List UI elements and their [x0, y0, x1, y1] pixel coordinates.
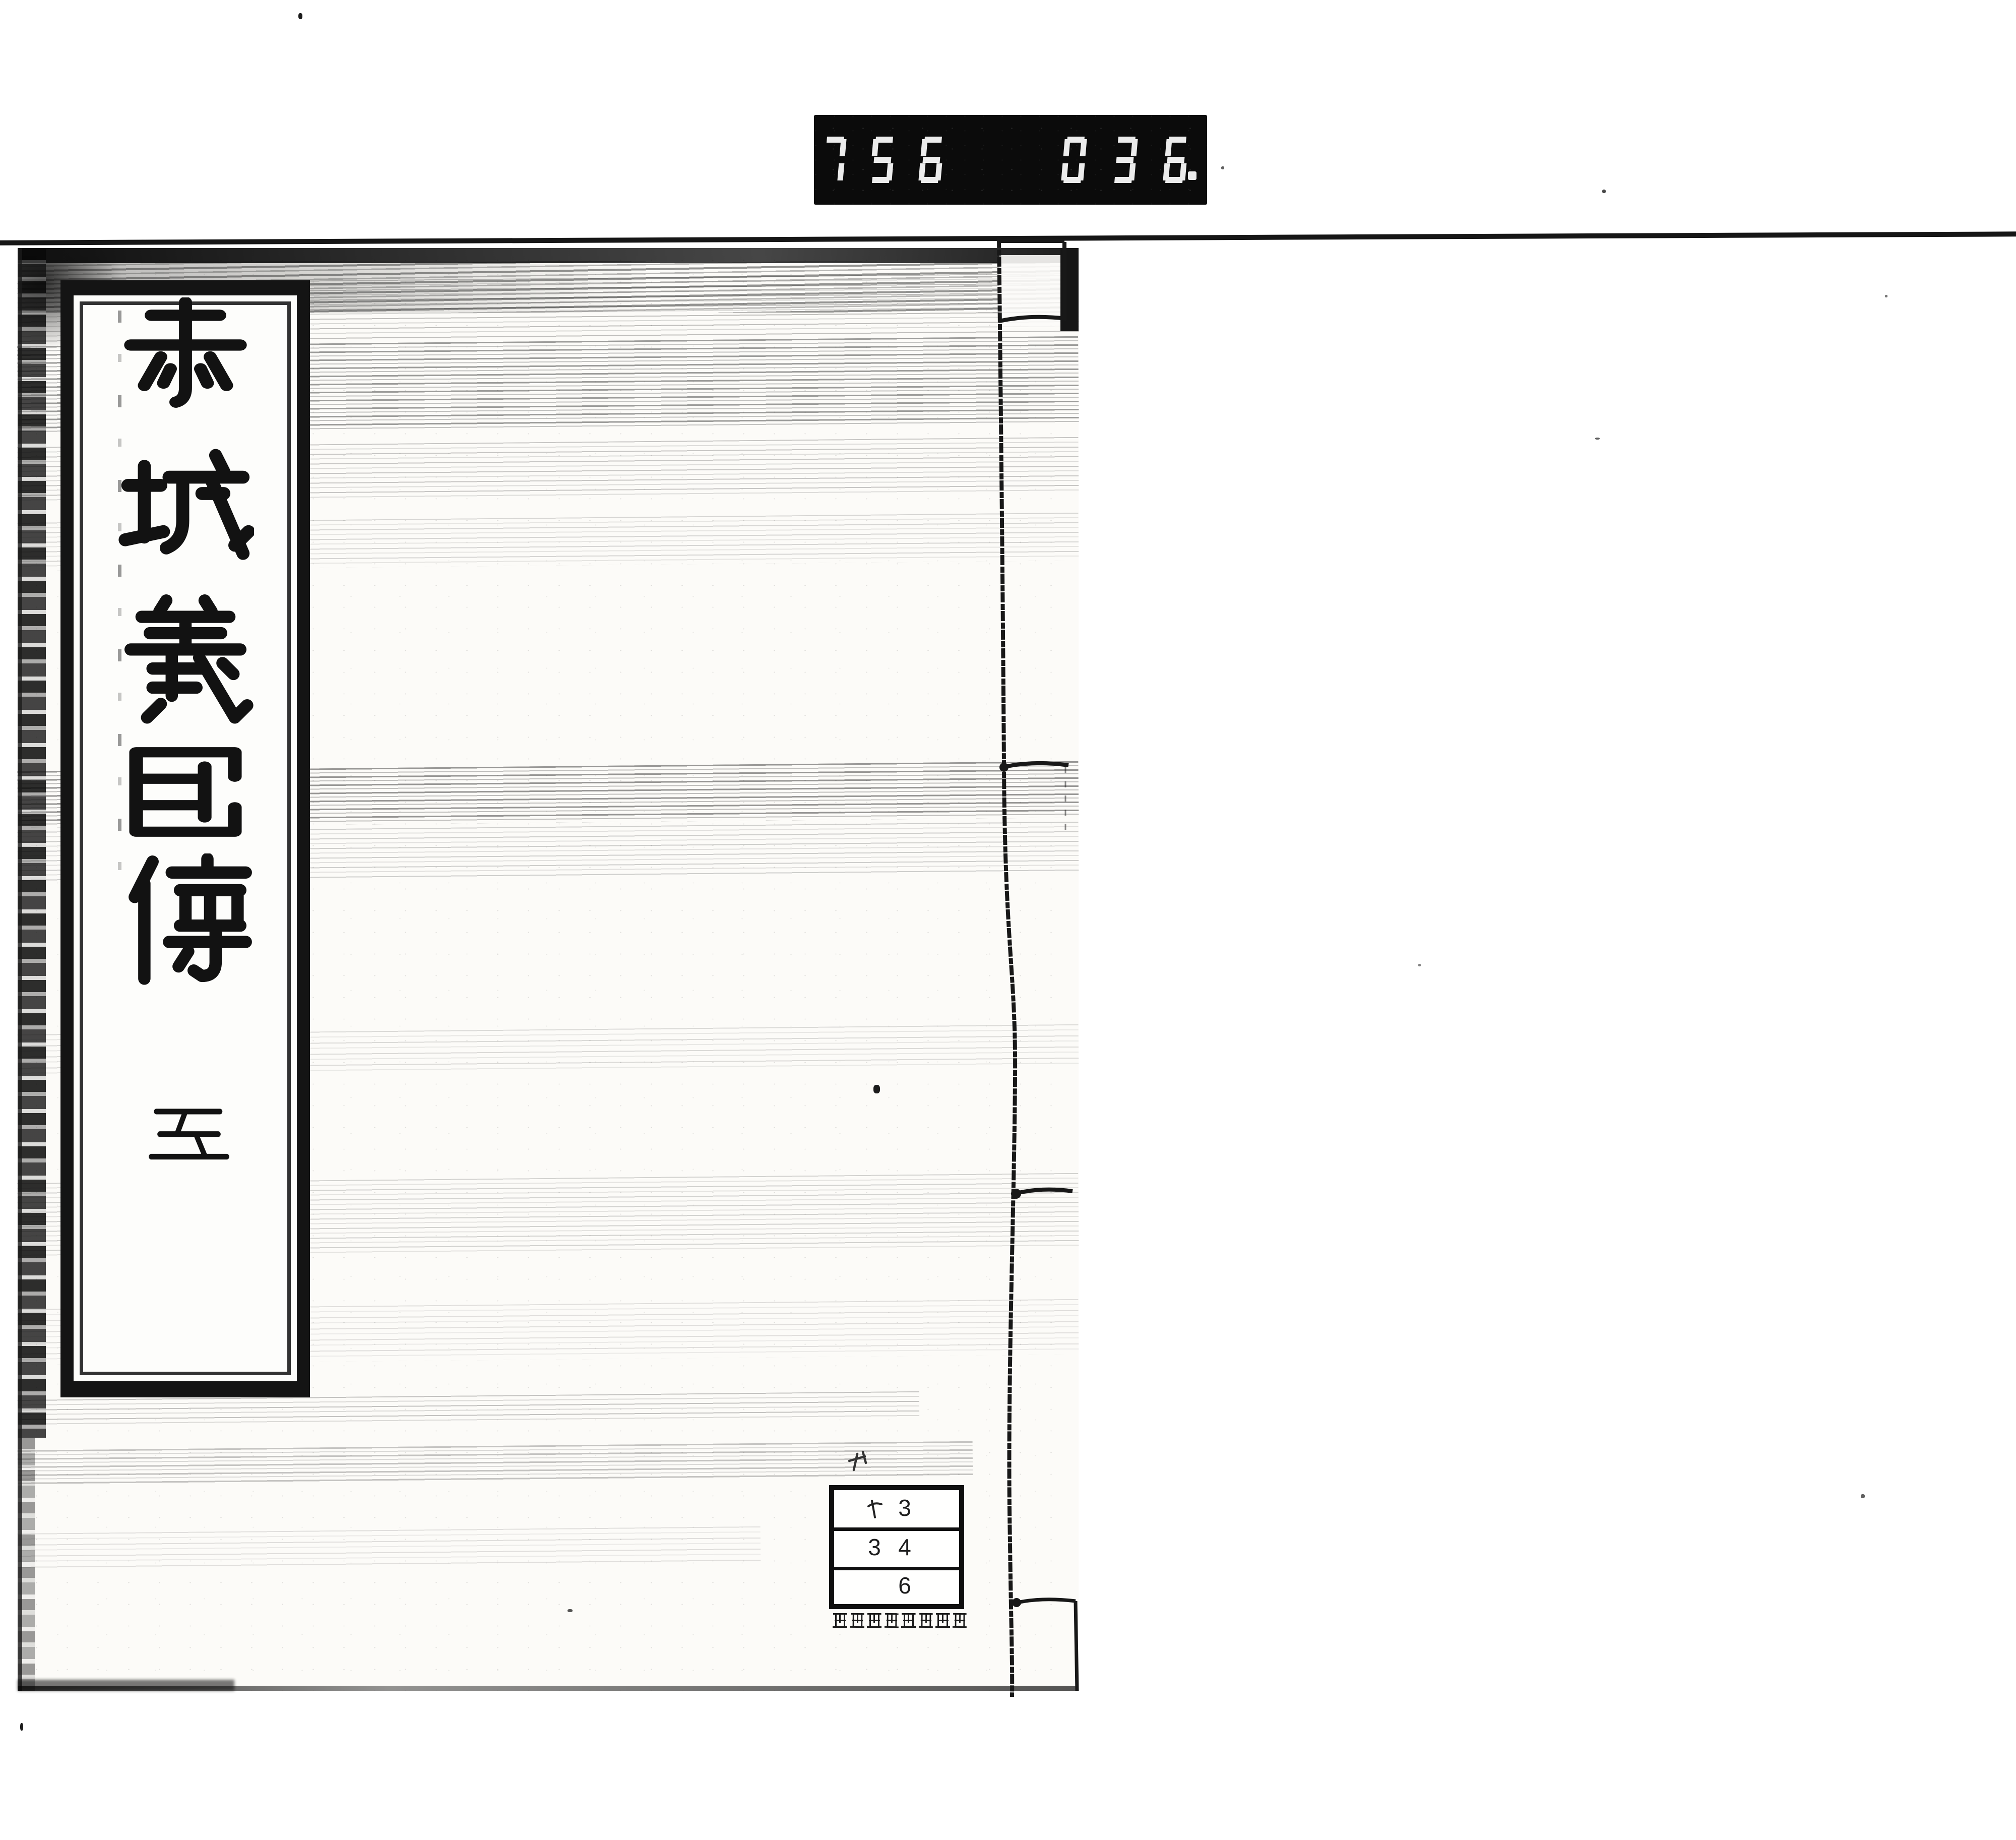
volume-glyph-go — [146, 1104, 232, 1160]
counter-right-digits — [1063, 137, 1216, 183]
cover-right-edge-top — [1060, 248, 1079, 331]
seven-segment-digit-7 — [821, 137, 847, 183]
label-row-2: 3 4 — [834, 1527, 959, 1567]
cover-bottom-left-corner — [18, 1680, 234, 1691]
seven-segment-digit-5 — [869, 137, 896, 183]
scan-speck — [568, 1609, 573, 1612]
scan-speck — [20, 1723, 23, 1731]
label-kana-ya: ヤ — [865, 1498, 885, 1519]
title-glyph-3-gi — [117, 592, 254, 728]
label-number: 3 — [863, 1531, 886, 1563]
seven-segment-digit-6 — [918, 137, 944, 183]
label-number: 4 — [894, 1531, 916, 1563]
scan-speck — [1885, 295, 1887, 297]
binding-corner-patch — [999, 255, 1065, 327]
title-glyph-5-den — [117, 853, 254, 990]
seven-segment-digit-3 — [1112, 137, 1138, 183]
scan-speck — [1602, 190, 1606, 193]
scan-speck — [873, 1085, 880, 1093]
label-number: 3 — [894, 1490, 916, 1525]
label-row-3: 6 — [834, 1567, 959, 1604]
cover-left-edge-line — [18, 248, 22, 1691]
cjk-glyph — [850, 1612, 865, 1629]
scan-divider-line — [0, 231, 2016, 246]
institution-stamp — [832, 1612, 969, 1629]
scan-speck — [1418, 964, 1421, 966]
scan-speck — [1861, 1494, 1865, 1498]
title-glyph-1-aka — [117, 297, 254, 416]
cjk-glyph — [918, 1612, 933, 1629]
cjk-glyph — [833, 1612, 848, 1629]
handwritten-mark — [847, 1448, 873, 1473]
scan-speck — [1595, 438, 1600, 440]
cjk-glyph — [867, 1612, 883, 1629]
label-number: 6 — [894, 1570, 916, 1601]
book-cover: 赤城義臣傳 五 — [18, 248, 1079, 1691]
title-glyph-2-jou — [117, 439, 254, 575]
scan-speck — [1221, 166, 1224, 169]
cjk-glyph — [885, 1612, 899, 1629]
seven-segment-digit-6 — [1163, 137, 1189, 183]
frame-counter-display — [814, 115, 1207, 205]
counter-left-digits — [823, 137, 969, 183]
counter-decimal-dot — [1188, 171, 1196, 180]
call-number-label: ヤ 3 3 4 6 — [829, 1485, 964, 1609]
title-slip: 赤城義臣傳 五 — [60, 280, 310, 1397]
cjk-glyph — [953, 1612, 967, 1629]
cjk-glyph — [935, 1612, 951, 1629]
scanned-book-page: 赤城義臣傳 五 — [0, 0, 2016, 1840]
label-row-1: ヤ 3 — [834, 1490, 959, 1527]
seven-segment-digit-0 — [1061, 137, 1087, 183]
cjk-glyph — [901, 1612, 917, 1629]
scan-speck — [298, 13, 302, 19]
title-glyph-4-shin — [117, 740, 254, 842]
